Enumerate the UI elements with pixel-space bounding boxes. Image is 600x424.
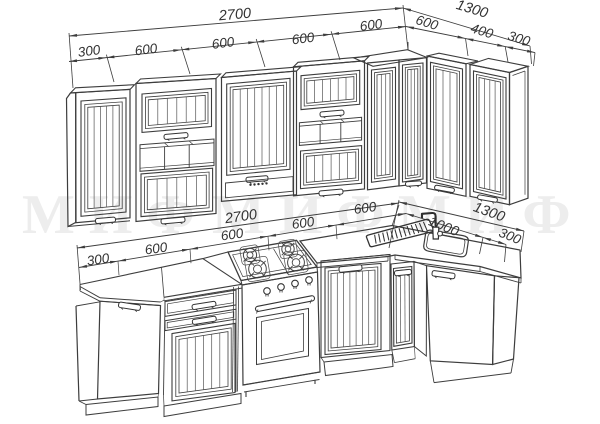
svg-text:600: 600 [359,16,384,34]
svg-text:600: 600 [291,30,316,48]
svg-text:600: 600 [220,225,245,243]
svg-text:600: 600 [144,239,169,257]
svg-text:300: 300 [77,42,102,60]
svg-text:600: 600 [291,214,316,232]
svg-text:2700: 2700 [217,6,252,25]
svg-text:600: 600 [134,41,159,59]
svg-text:МИФ: МИФ [22,184,209,246]
svg-text:600: 600 [211,34,236,52]
svg-text:600: 600 [353,199,378,217]
svg-text:300: 300 [86,250,111,268]
